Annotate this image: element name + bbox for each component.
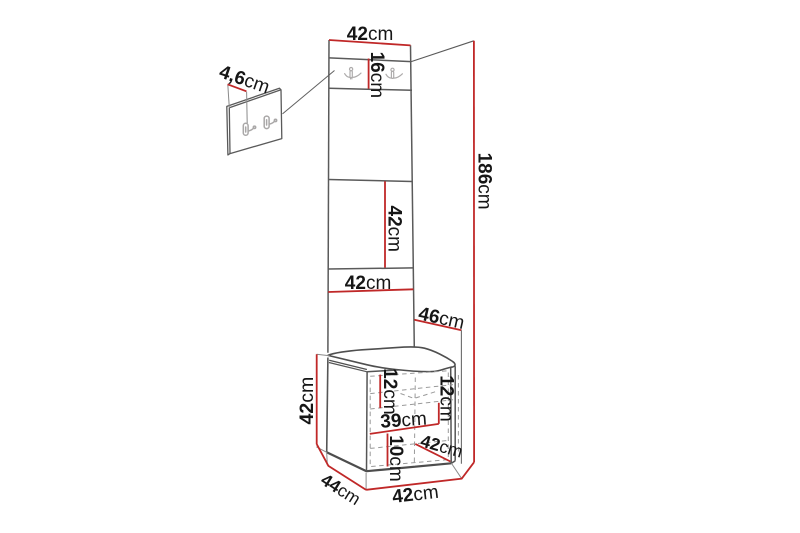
svg-text:42cm: 42cm [296,377,318,425]
svg-text:42cm: 42cm [345,273,391,294]
svg-text:4,6cm: 4,6cm [216,62,272,99]
svg-text:42cm: 42cm [347,24,393,45]
svg-text:12cm: 12cm [379,368,400,414]
svg-text:42cm: 42cm [383,206,404,252]
svg-text:186cm: 186cm [473,153,494,210]
svg-text:16cm: 16cm [366,52,387,98]
svg-text:46cm: 46cm [416,303,466,334]
svg-text:42cm: 42cm [391,482,440,508]
svg-text:10cm: 10cm [385,435,406,481]
svg-text:39cm: 39cm [380,409,428,433]
svg-text:12cm: 12cm [436,375,457,421]
svg-text:44cm: 44cm [317,469,364,509]
